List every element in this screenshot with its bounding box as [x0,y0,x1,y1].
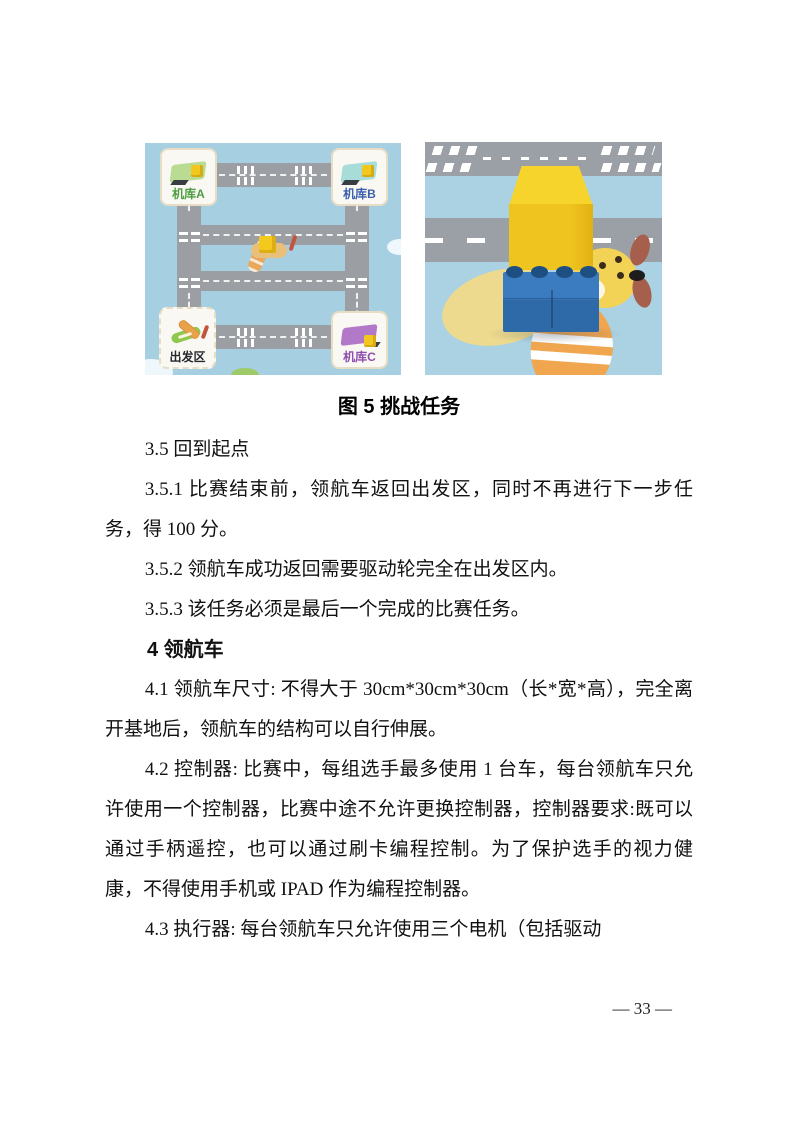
crosswalk-mark [237,177,254,185]
document-page: 机库A 机库B 出发区 机库C [0,0,794,1122]
body-text: 3.5 回到起点 3.5.1 比赛结束前，领航车返回出发区，同时不再进行下一步任… [105,430,693,950]
lane-dash [203,280,343,282]
crosswalk-mark [346,228,355,242]
crosswalk-mark [179,274,188,288]
crosswalk-mark [295,339,312,347]
paragraph-4-2: 4.2 控制器: 比赛中，每组选手最多使用 1 台车，每台领航车只允许使用一个控… [105,750,693,910]
page-number: — 33 — [613,995,673,1023]
lane-dash [219,174,327,176]
crosswalk-mark [295,177,312,185]
lane-dash [483,157,596,160]
plane-with-yellow-cube-icon [247,229,299,273]
paragraph-3-5-1: 3.5.1 比赛结束前，领航车返回出发区，同时不再进行下一步任务，得 100 分… [105,470,693,550]
crosswalk-mark [237,328,254,336]
paragraph-3-5-3: 3.5.3 该任务必须是最后一个完成的比赛任务。 [105,590,693,630]
crosswalk-mark [179,228,188,242]
figure-cube-photo [425,142,662,375]
propeller-hub [629,270,645,281]
green-hangar-icon [170,160,208,186]
map-tile-hangar-c: 机库C [331,311,388,369]
crosswalk-mark [426,163,479,172]
crosswalk-mark [191,228,200,242]
tile-label: 机库C [343,350,376,367]
crosswalk-mark [601,146,656,155]
crosswalk-mark [358,274,367,288]
yellow-cube-front [509,204,593,270]
bush-decor [231,368,259,375]
yellow-cube-icon [509,166,593,206]
map-tile-start-zone: 出发区 [159,307,216,369]
map-tile-hangar-a: 机库A [160,148,217,206]
purple-hangar-icon [341,323,379,349]
crosswalk-mark [358,228,367,242]
lane-dash [219,336,327,338]
paragraph-4-1: 4.1 领航车尺寸: 不得大于 30cm*30cm*30cm（长*宽*高），完全… [105,670,693,750]
heading-section-4: 4 领航车 [105,630,693,670]
blue-brick-icon [503,272,599,332]
crosswalk-mark [237,166,254,174]
tile-label: 出发区 [169,350,205,367]
tile-label: 机库B [343,187,376,204]
paragraph-3-5-2: 3.5.2 领航车成功返回需要驱动轮完全在出发区内。 [105,550,693,590]
crosswalk-mark [295,328,312,336]
crosswalk-mark [432,146,479,155]
toy-plane-icon [168,319,208,349]
cloud-decor [387,239,401,255]
crosswalk-mark [346,274,355,288]
figure-map-photo: 机库A 机库B 出发区 机库C [145,143,401,375]
teal-hangar-icon [341,160,379,186]
paragraph-3-5: 3.5 回到起点 [105,430,693,470]
crosswalk-mark [295,166,312,174]
tile-label: 机库A [172,187,205,204]
paragraph-4-3: 4.3 执行器: 每台领航车只允许使用三个电机（包括驱动 [105,910,693,950]
figure-caption: 图 5 挑战任务 [105,393,693,421]
crosswalk-mark [191,274,200,288]
map-tile-hangar-b: 机库B [331,148,388,206]
crosswalk-mark [601,163,662,172]
crosswalk-mark [237,339,254,347]
